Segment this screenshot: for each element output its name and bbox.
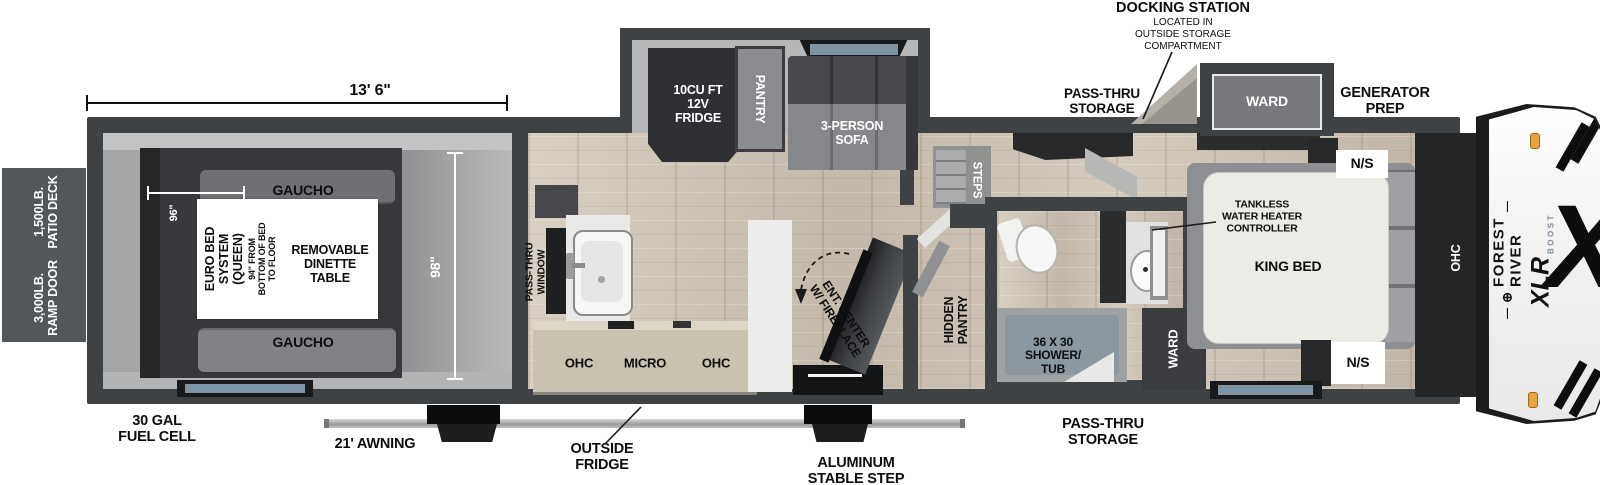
bed-height-note-label: 94" FROMBOTTOM OF BEDTO FLOOR bbox=[247, 223, 277, 296]
hidden-pantry-wall bbox=[903, 235, 918, 392]
brand-submodel: BOOST bbox=[1547, 213, 1556, 254]
bedroom-front-wall bbox=[1415, 133, 1478, 397]
bedroom-bottom-window-glass bbox=[1218, 385, 1313, 395]
docking-station-label: DOCKING STATION LOCATED IN OUTSIDE STORA… bbox=[1098, 1, 1268, 53]
vanity-cabinet bbox=[1100, 211, 1126, 303]
logo-rule-right: — bbox=[1502, 201, 1514, 212]
docking-station-title: DOCKING STATION bbox=[1098, 1, 1268, 17]
garage-width-dimension-label: 13' 6" bbox=[349, 82, 390, 100]
pass-thru-window-opening bbox=[546, 228, 568, 314]
euro-bed-label: EURO BEDSYSTEM(QUEEN) bbox=[203, 227, 245, 291]
fuel-cell-label: 30 GALFUEL CELL bbox=[118, 413, 196, 445]
hidden-pantry-label: HIDDENPANTRY bbox=[942, 296, 970, 345]
tankless-controller-label: TANKLESSWATER HEATERCONTROLLER bbox=[1222, 199, 1302, 234]
king-bed-label: KING BED bbox=[1255, 259, 1322, 275]
bathroom-ward-label: WARD bbox=[1167, 330, 1182, 369]
bed-footboard-cushions bbox=[1385, 170, 1415, 342]
front-cap: X — ⊕ FOREST RIVER — XLR BOOST bbox=[1489, 107, 1600, 421]
sink-drain-icon bbox=[598, 276, 605, 283]
garage-rear-window-glass bbox=[185, 384, 305, 393]
bed-width-dimension-label: 96" bbox=[168, 205, 180, 222]
pass-thru-window-label: PASS-THRUWINDOW bbox=[524, 243, 548, 302]
entry-door-mat bbox=[793, 365, 883, 395]
shower-tub-label: 36 X 30SHOWER/TUB bbox=[1025, 336, 1081, 376]
nightstand-top-tag: N/S bbox=[1336, 150, 1388, 178]
stable-step-label: ALUMINUMSTABLE STEP bbox=[808, 455, 905, 485]
outside-fridge-step-lower bbox=[437, 424, 497, 442]
sink-faucet-spout-icon bbox=[572, 263, 585, 268]
brand-name: FOREST RIVER bbox=[1491, 217, 1525, 287]
stable-step-lower bbox=[812, 424, 868, 442]
ohc-left-label: OHC bbox=[565, 357, 593, 372]
counter-fixture-icon bbox=[673, 321, 691, 328]
outside-fridge-step-upper bbox=[427, 405, 500, 424]
ohc-right-label: OHC bbox=[702, 357, 730, 372]
outside-fridge-label: OUTSIDEFRIDGE bbox=[570, 441, 633, 473]
removable-dinette-label: REMOVABLEDINETTETABLE bbox=[291, 243, 368, 285]
euro-bed-platform-edge bbox=[140, 148, 160, 378]
logo-rule-left: — bbox=[1502, 308, 1514, 319]
cooktop-icon bbox=[608, 321, 634, 329]
body-width-dimension-label: 98" bbox=[428, 256, 444, 278]
garage-width-dimension-line bbox=[87, 95, 507, 111]
brand-logo: — ⊕ FOREST RIVER — XLR BOOST bbox=[1491, 201, 1556, 319]
steps-label: STEPS bbox=[970, 162, 983, 199]
slide-window-glass bbox=[810, 44, 898, 55]
fridge-label: 10CU FT12VFRIDGE bbox=[673, 83, 722, 125]
half-wall bbox=[748, 220, 792, 392]
gaucho-bottom-label: GAUCHO bbox=[272, 335, 333, 351]
patio-deck-label: 1,500LB.PATIO DECK bbox=[32, 175, 60, 248]
nightstand-top-label: N/S bbox=[1351, 156, 1374, 172]
ward-slide-label: WARD bbox=[1246, 94, 1288, 110]
kitchen-sink-basin bbox=[581, 241, 623, 302]
medicine-cabinet-glass bbox=[1153, 230, 1165, 296]
sofa-back bbox=[788, 56, 918, 108]
marker-light-top-icon bbox=[1530, 133, 1540, 149]
floorplan-canvas: N/S N/S WARD X — ⊕ FOREST RIVER — bbox=[0, 0, 1600, 485]
bedroom-ohc-label: OHC bbox=[1449, 244, 1463, 271]
stable-step-upper bbox=[804, 405, 872, 424]
ward-slide-panel: WARD bbox=[1212, 74, 1322, 130]
brand-model: XLR bbox=[1527, 257, 1556, 307]
forest-river-emblem-icon: ⊕ bbox=[1500, 292, 1516, 303]
sofa-label: 3-PERSONSOFA bbox=[821, 119, 883, 147]
awning-label: 21' AWNING bbox=[335, 436, 416, 452]
range-hood-cabinet bbox=[535, 185, 578, 218]
vanity-drain-icon bbox=[1143, 267, 1148, 272]
nightstand-bottom-tag: N/S bbox=[1331, 342, 1385, 384]
nightstand-bottom-label: N/S bbox=[1347, 355, 1370, 371]
generator-prep-label: GENERATORPREP bbox=[1340, 85, 1430, 117]
marker-light-bottom-icon bbox=[1528, 392, 1538, 408]
nightstand-bottom bbox=[1301, 340, 1331, 386]
pass-thru-storage-top-label: PASS-THRUSTORAGE bbox=[1064, 86, 1140, 116]
micro-label: MICRO bbox=[624, 357, 666, 372]
ramp-door-label: 3,000LB.RAMP DOOR bbox=[32, 260, 60, 336]
entry-steps-treads bbox=[936, 150, 966, 204]
sofa-armrest bbox=[906, 56, 918, 170]
gaucho-top-label: GAUCHO bbox=[272, 183, 333, 199]
pantry-label: PANTRY bbox=[753, 75, 767, 124]
garage-open-floor bbox=[400, 150, 512, 372]
entry-door-step-line bbox=[808, 374, 862, 377]
pass-thru-storage-bottom-label: PASS-THRUSTORAGE bbox=[1062, 416, 1144, 448]
